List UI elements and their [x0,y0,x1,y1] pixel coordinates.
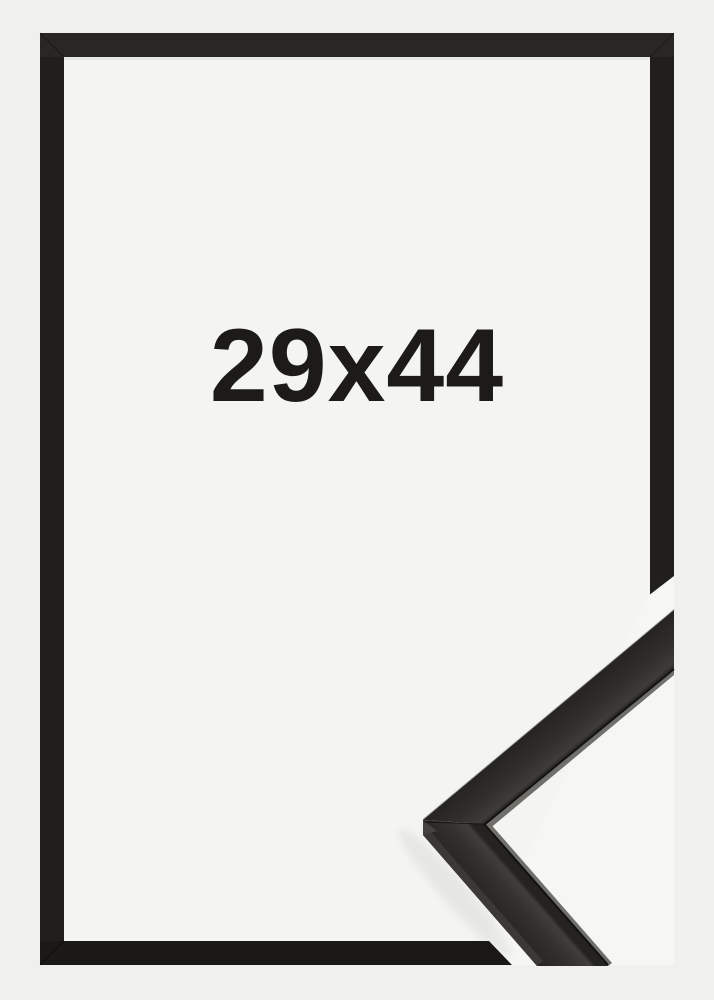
product-photo: 29x44 [0,0,714,1000]
size-label: 29x44 [0,314,714,418]
frame-inner-shadow [64,57,650,60]
frame-left-bar [40,57,64,941]
frame-top-bar [40,33,674,57]
frame-illustration [0,0,714,1000]
